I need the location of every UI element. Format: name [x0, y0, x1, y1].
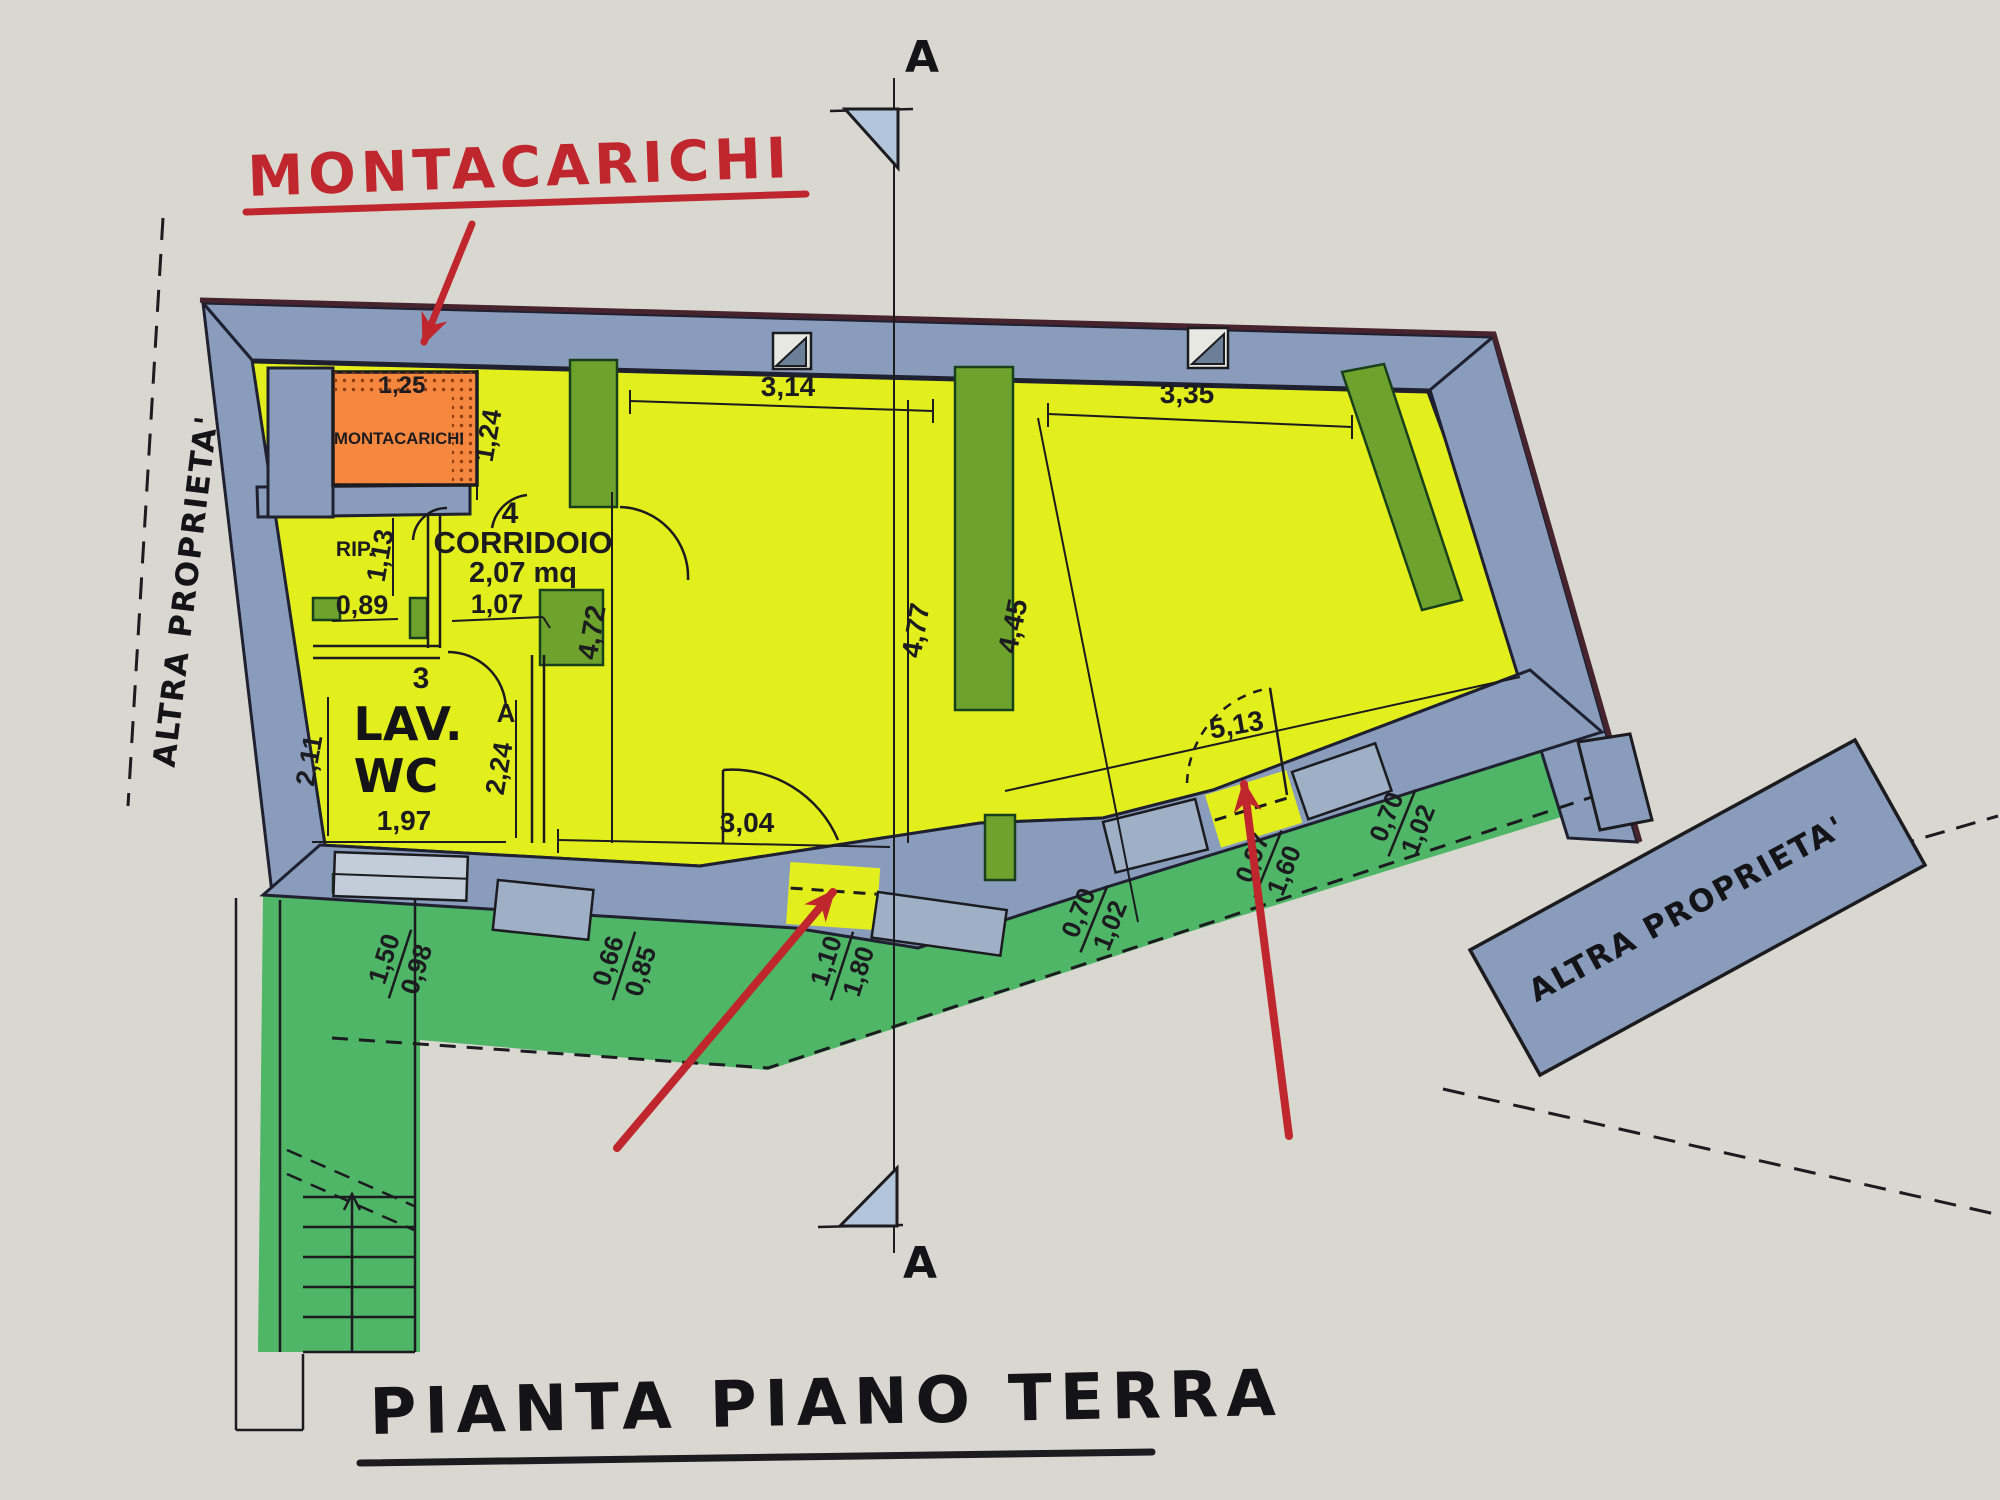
wall-left-of-montacarichi	[268, 368, 333, 517]
floor-plan-page: 1,25 MONTACARICHI 1,24	[0, 0, 2000, 1500]
dim-lavwc-bottom: 1,97	[377, 805, 432, 836]
corridoio-label: CORRIDOIO	[433, 525, 612, 560]
dim-central-top: 3,14	[761, 371, 816, 402]
wall-strip	[570, 360, 617, 507]
wall-strip	[985, 815, 1015, 880]
dim-central-bottom: 3,04	[720, 807, 775, 838]
montacarichi-room-label: MONTACARICHI	[334, 429, 464, 448]
dim-rip-width: 0,89	[336, 590, 389, 620]
dim-corridoio-width: 1,07	[471, 589, 524, 619]
lavwc-door-letter: A	[497, 698, 516, 728]
lavwc-label-1: LAV.	[354, 697, 463, 751]
wall-strip	[410, 598, 427, 638]
corridoio-area: 2,07 mq	[469, 557, 577, 589]
dim-montacarichi-width: 1,25	[379, 372, 426, 399]
lavwc-number: 3	[413, 662, 430, 695]
floor-plan-canvas: 1,25 MONTACARICHI 1,24	[0, 0, 2000, 1500]
dim-right-room-top: 3,35	[1160, 378, 1215, 409]
lavwc-label-2: WC	[354, 749, 439, 803]
window	[493, 880, 594, 940]
wall-strip	[955, 367, 1013, 710]
section-label-top: A	[905, 32, 939, 83]
section-label-bottom: A	[903, 1238, 937, 1289]
